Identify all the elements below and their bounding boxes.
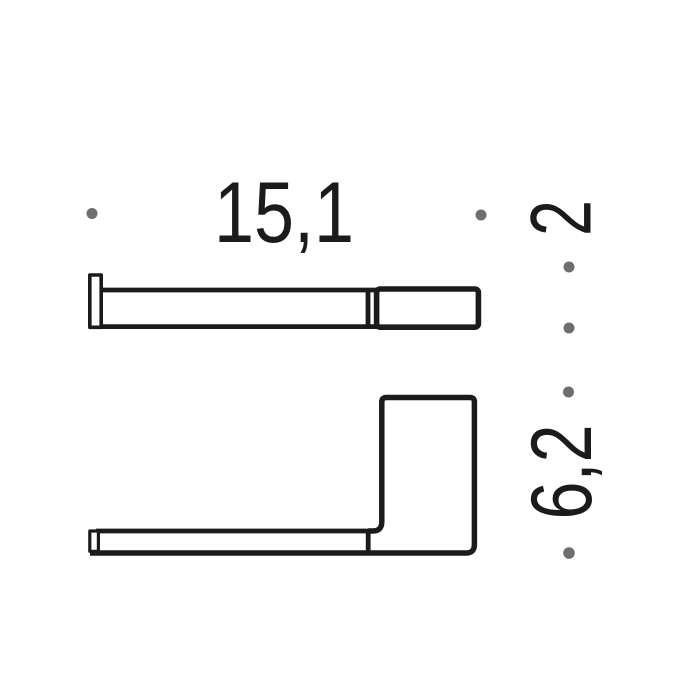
bar-top-view <box>100 290 377 327</box>
dimension-dot <box>563 547 575 559</box>
dimension-dot <box>564 323 575 334</box>
wall-flange-top-view <box>90 275 101 327</box>
dimension-dot <box>563 387 574 398</box>
technical-drawing: 15,1 2 6,2 <box>0 0 700 700</box>
width-dimension-label: 15,1 <box>214 165 354 261</box>
mount-section-top-view <box>377 289 479 327</box>
height-dimension-label: 6,2 <box>514 425 610 520</box>
dimension-dot <box>564 262 575 273</box>
wall-flange-side-view <box>90 531 99 551</box>
drawing-canvas: 15,1 2 6,2 <box>0 0 700 700</box>
bar-side-view <box>96 531 368 551</box>
dimension-dot <box>87 208 98 219</box>
top-view <box>90 275 479 327</box>
dimension-dot <box>476 210 487 221</box>
depth-dimension-label: 2 <box>514 200 610 236</box>
side-view <box>90 398 475 554</box>
